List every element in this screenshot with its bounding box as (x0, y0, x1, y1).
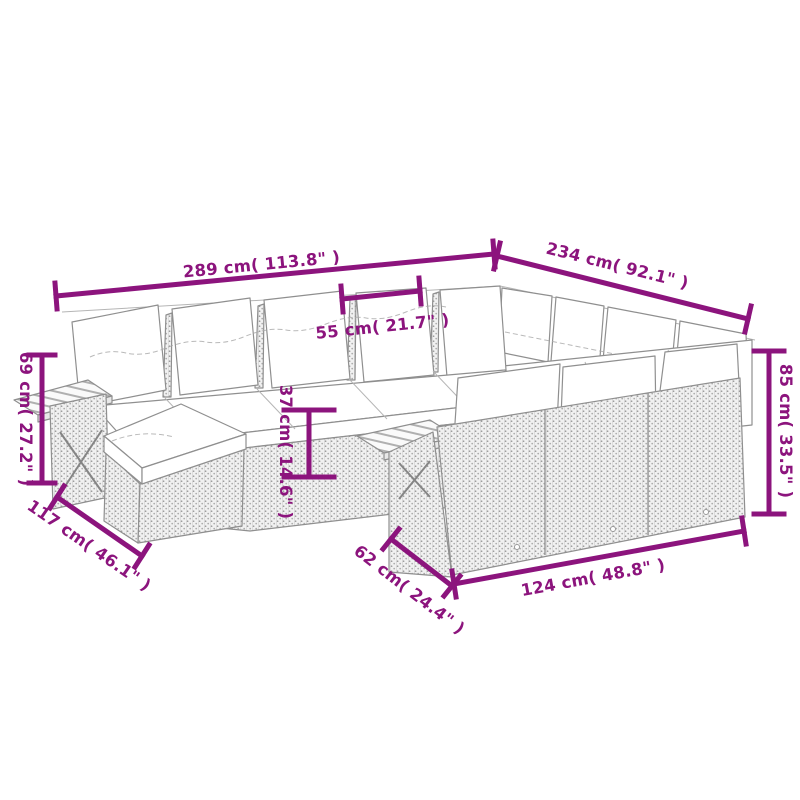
dimension-diagram: 289 cm( 113.8" ) 234 cm( 92.1" ) 55 cm( … (0, 0, 800, 800)
panel-fitting (704, 510, 709, 515)
panel-fitting (611, 527, 616, 532)
panel-fitting (515, 545, 520, 550)
dim-label-seat-height: 37 cm( 14.6" ) (276, 385, 295, 519)
back-cushion (499, 288, 552, 362)
back-cushion (440, 286, 506, 377)
dim-label-back-height: 85 cm( 33.5" ) (776, 364, 795, 498)
sofa-dimension-svg: 289 cm( 113.8" ) 234 cm( 92.1" ) 55 cm( … (0, 0, 800, 800)
dim-label-front-width: 124 cm( 48.8" ) (519, 555, 666, 600)
back-cushion (172, 298, 258, 395)
dim-label-arm-height: 69 cm( 27.2" ) (16, 352, 35, 486)
